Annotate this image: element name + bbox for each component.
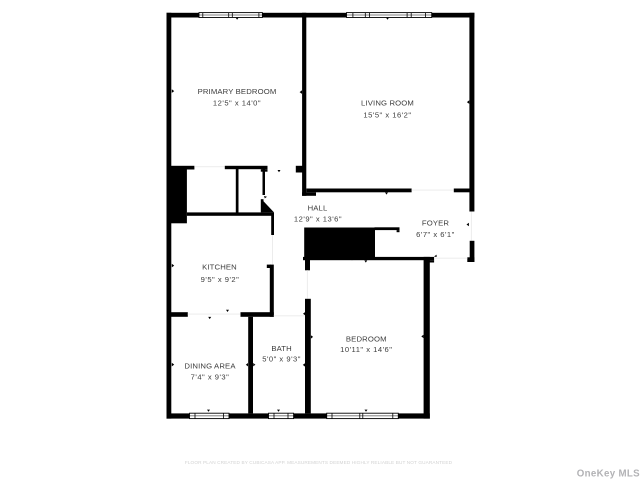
svg-text:12'5" x 14'0": 12'5" x 14'0": [213, 99, 261, 108]
svg-text:BEDROOM: BEDROOM: [346, 335, 387, 344]
svg-text:FOYER: FOYER: [422, 219, 450, 228]
svg-text:DINING AREA: DINING AREA: [184, 361, 236, 370]
svg-text:6'7" x 6'1": 6'7" x 6'1": [416, 230, 455, 239]
svg-text:OneKey MLS: OneKey MLS: [577, 469, 640, 480]
svg-text:15'5" x 16'2": 15'5" x 16'2": [363, 110, 411, 119]
svg-text:HALL: HALL: [308, 203, 328, 212]
svg-text:7'4" x 9'3": 7'4" x 9'3": [191, 373, 230, 382]
svg-text:BATH: BATH: [271, 344, 292, 353]
svg-text:FLOOR PLAN CREATED BY CUBICASA: FLOOR PLAN CREATED BY CUBICASA APP. MEAS…: [185, 460, 453, 465]
svg-text:9'5" x 9'2": 9'5" x 9'2": [201, 275, 240, 284]
svg-text:KITCHEN: KITCHEN: [202, 263, 237, 272]
svg-text:LIVING ROOM: LIVING ROOM: [361, 98, 414, 107]
svg-text:PRIMARY BEDROOM: PRIMARY BEDROOM: [198, 87, 277, 96]
svg-text:12'9" x 13'6": 12'9" x 13'6": [294, 214, 342, 223]
svg-text:5'0" x 9'3": 5'0" x 9'3": [262, 355, 301, 364]
svg-text:10'11" x 14'6": 10'11" x 14'6": [340, 345, 392, 354]
